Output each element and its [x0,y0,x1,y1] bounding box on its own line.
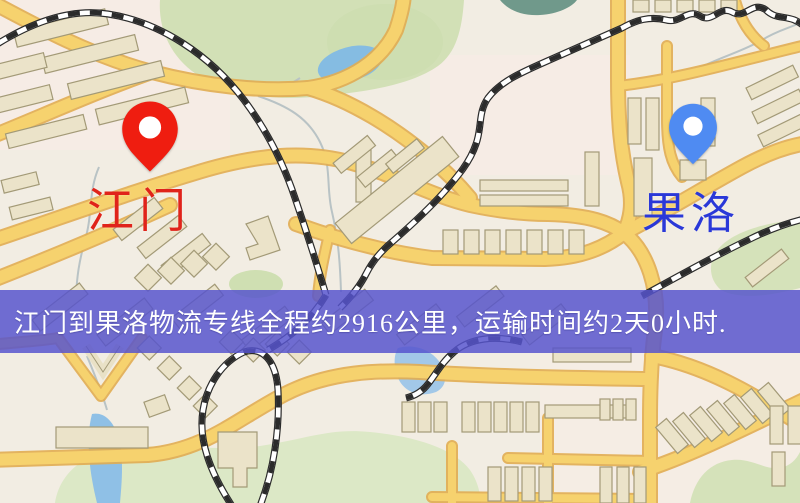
route-info-text: 江门到果洛物流专线全程约2916公里，运输时间约2天0小时. [14,303,727,340]
destination-pin-hole [683,117,702,136]
destination-pin-icon [668,101,718,167]
map-artwork [0,0,800,503]
origin-pin[interactable] [121,100,179,173]
route-info-banner: 江门到果洛物流专线全程约2916公里，运输时间约2天0小时. [0,290,800,353]
origin-city-label: 江门 [87,172,191,241]
origin-pin-icon [121,100,179,173]
destination-pin[interactable] [668,101,718,167]
destination-city-label: 果洛 [642,177,740,241]
map-view[interactable]: 江门 果洛 江门到果洛物流专线全程约2916公里，运输时间约2天0小时. [0,0,800,503]
origin-pin-hole [139,116,161,138]
